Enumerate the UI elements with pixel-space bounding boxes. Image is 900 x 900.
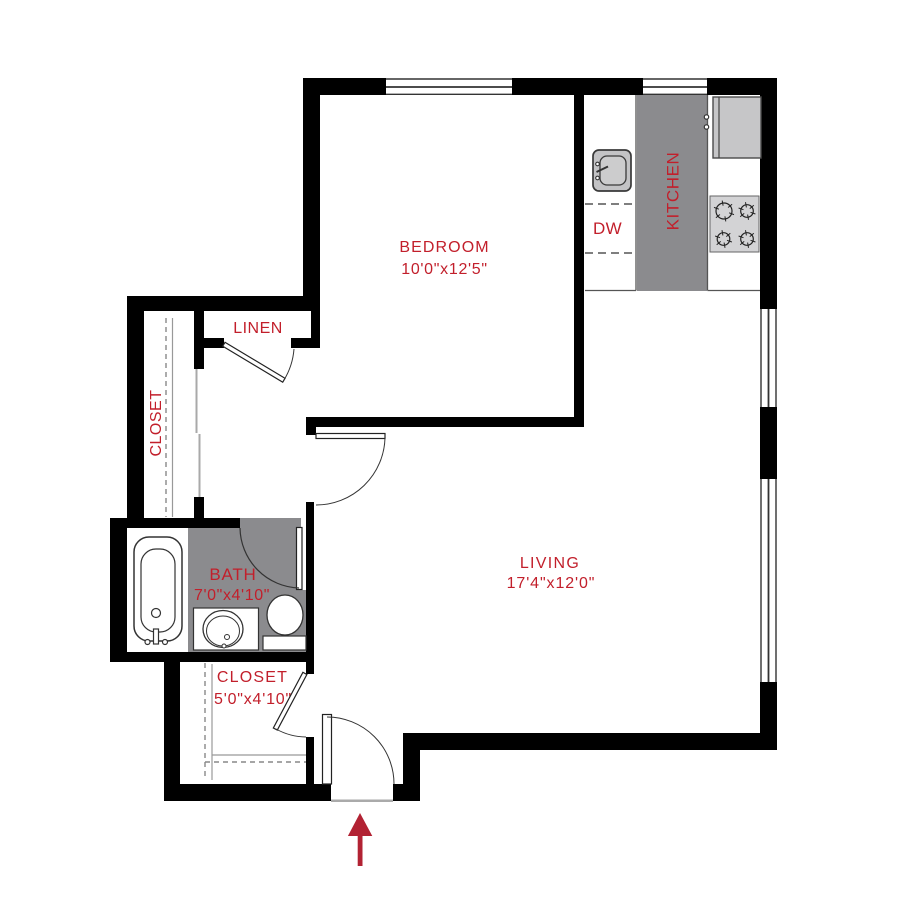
svg-text:CLOSET: CLOSET: [148, 389, 165, 456]
svg-text:KITCHEN: KITCHEN: [664, 152, 683, 231]
svg-text:LIVING: LIVING: [520, 555, 580, 572]
svg-text:DW: DW: [593, 219, 622, 238]
svg-text:5'0"x4'10": 5'0"x4'10": [214, 691, 292, 708]
svg-text:17'4"x12'0": 17'4"x12'0": [507, 575, 596, 592]
svg-text:BATH: BATH: [209, 565, 256, 584]
svg-text:CLOSET: CLOSET: [217, 669, 288, 686]
svg-text:LINEN: LINEN: [233, 320, 283, 337]
svg-text:10'0"x12'5": 10'0"x12'5": [401, 261, 488, 278]
svg-text:7'0"x4'10": 7'0"x4'10": [194, 587, 270, 604]
svg-text:BEDROOM: BEDROOM: [399, 239, 489, 256]
